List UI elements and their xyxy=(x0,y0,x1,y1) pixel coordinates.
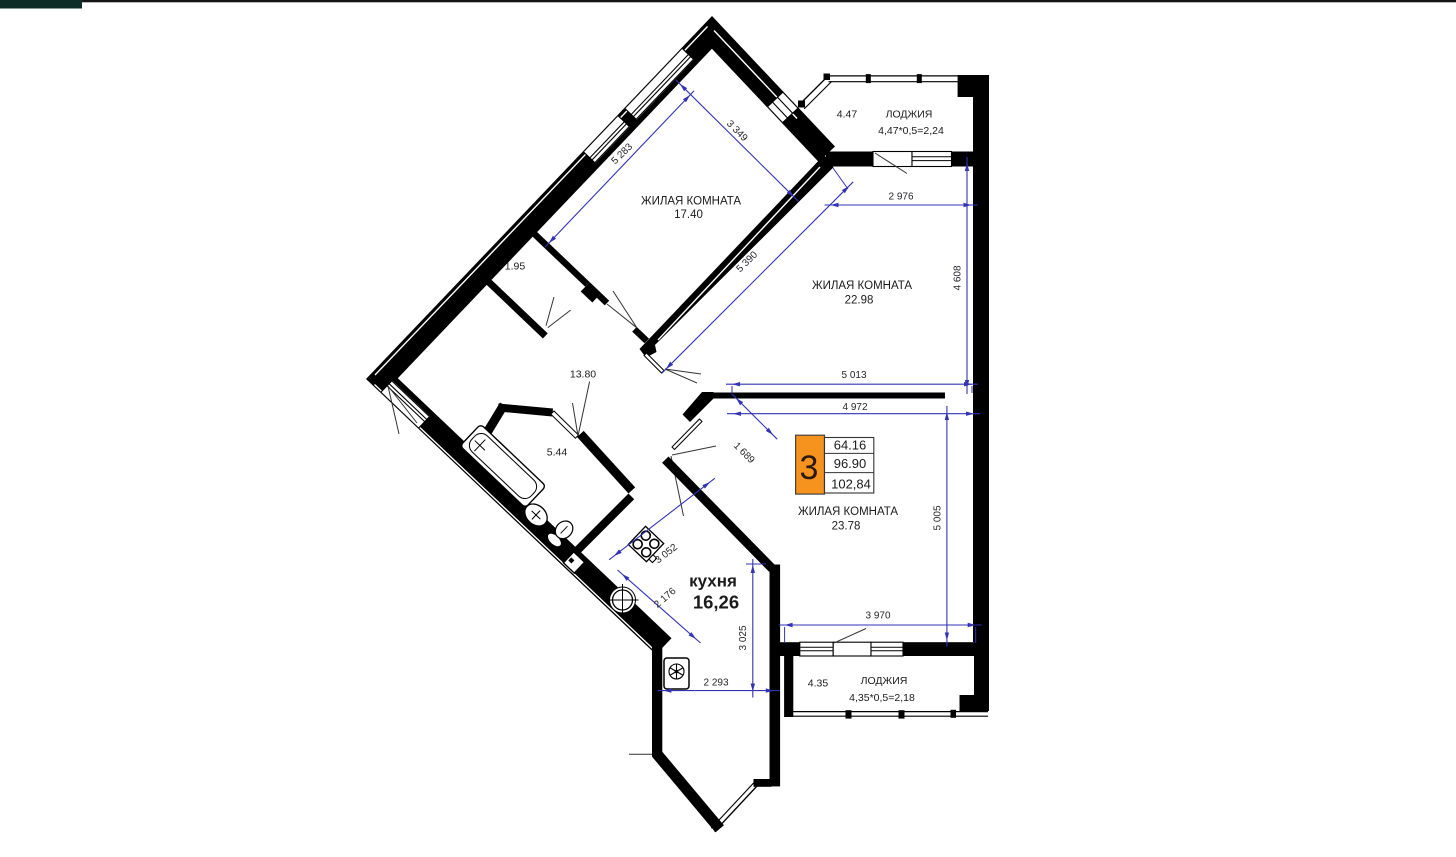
svg-text:4 608: 4 608 xyxy=(953,265,964,290)
svg-text:5.44: 5.44 xyxy=(547,447,568,459)
svg-text:кухня: кухня xyxy=(689,572,737,591)
svg-text:16,26: 16,26 xyxy=(693,592,739,613)
svg-text:102,84: 102,84 xyxy=(831,477,871,492)
svg-text:22.98: 22.98 xyxy=(845,295,874,307)
svg-text:ЛОДЖИЯ: ЛОДЖИЯ xyxy=(886,109,933,121)
svg-text:4,47*0,5=2,24: 4,47*0,5=2,24 xyxy=(878,125,944,137)
svg-text:2 976: 2 976 xyxy=(888,192,913,203)
svg-text:4.47: 4.47 xyxy=(837,109,858,121)
svg-text:64.16: 64.16 xyxy=(834,438,867,453)
svg-text:5 005: 5 005 xyxy=(933,505,944,530)
svg-text:5 013: 5 013 xyxy=(841,370,866,381)
svg-text:2 293: 2 293 xyxy=(703,678,728,689)
svg-text:3: 3 xyxy=(800,449,819,487)
svg-text:3 025: 3 025 xyxy=(738,625,749,650)
svg-text:4,35*0,5=2,18: 4,35*0,5=2,18 xyxy=(849,692,915,704)
svg-text:4.35: 4.35 xyxy=(808,678,829,690)
svg-text:96.90: 96.90 xyxy=(834,456,867,471)
svg-text:23.78: 23.78 xyxy=(832,521,861,533)
svg-text:13.80: 13.80 xyxy=(570,369,596,381)
svg-text:ЛОДЖИЯ: ЛОДЖИЯ xyxy=(861,675,908,687)
svg-text:3 970: 3 970 xyxy=(865,611,890,622)
svg-text:ЖИЛАЯ КОМНАТА: ЖИЛАЯ КОМНАТА xyxy=(798,506,898,518)
svg-text:17.40: 17.40 xyxy=(674,209,703,221)
svg-text:1.95: 1.95 xyxy=(505,261,526,273)
svg-text:ЖИЛАЯ КОМНАТА: ЖИЛАЯ КОМНАТА xyxy=(641,196,741,208)
svg-text:4 972: 4 972 xyxy=(842,402,867,413)
svg-text:ЖИЛАЯ КОМНАТА: ЖИЛАЯ КОМНАТА xyxy=(812,280,912,292)
